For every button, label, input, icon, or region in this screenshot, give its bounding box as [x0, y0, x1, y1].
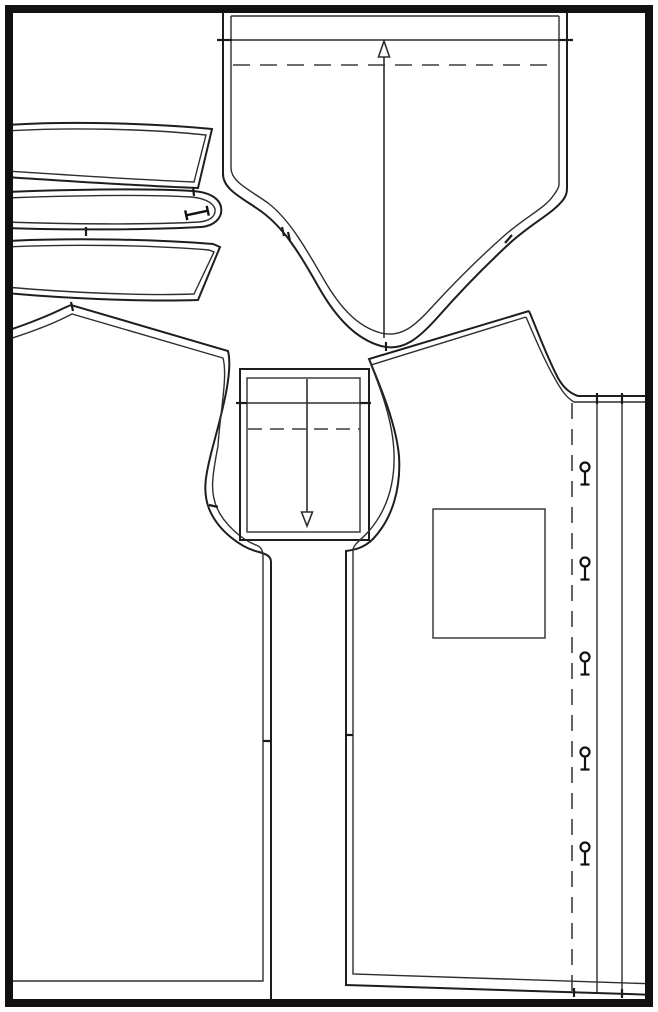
- cuff-seam-outline: [247, 378, 360, 532]
- strip-piece-3: [6, 239, 220, 300]
- grainline-layer: [302, 41, 390, 526]
- pattern-page: [0, 0, 658, 1012]
- sewing-pattern-canvas: [0, 0, 658, 1012]
- buttonhole-marker: [581, 653, 590, 675]
- right-front-neck-seam: [526, 317, 658, 402]
- back-seam-outline: [231, 16, 559, 334]
- collar-band-piece: [6, 187, 221, 236]
- back-grainline-arrow: [379, 41, 390, 338]
- collar-top-notch: [193, 187, 194, 196]
- strip-piece-1: [6, 123, 212, 188]
- collar-buttonhole-marker: [185, 206, 209, 220]
- pocket-outline: [433, 509, 545, 638]
- page-border: [9, 9, 649, 1003]
- buttonhole-marker: [581, 463, 590, 485]
- back-piece: [217, 6, 573, 351]
- buttonhole-marker: [581, 558, 590, 580]
- left-front-cut-outline: [6, 305, 271, 1008]
- right-front-body-seam: [353, 317, 658, 984]
- collar-seam-outline: [6, 195, 215, 223]
- back-curve-double-notch-a: [282, 227, 284, 236]
- buttonhole-layer: [581, 463, 590, 865]
- right-front-neck-cut: [529, 311, 658, 396]
- left-front-seam-outline: [6, 314, 263, 981]
- cuff-grainline-arrow: [302, 379, 313, 526]
- buttonhole-marker: [581, 748, 590, 770]
- right-front-body-cut: [346, 311, 658, 995]
- buttonhole-marker: [581, 843, 590, 865]
- strip3-seam-outline: [6, 245, 214, 294]
- left-front-shoulder-notch: [71, 302, 73, 311]
- left-front-piece: [6, 302, 272, 1008]
- back-cut-outline: [223, 6, 567, 347]
- collar-buttonhole-layer: [185, 206, 209, 220]
- strip1-seam-outline: [6, 129, 206, 182]
- right-front-piece: [345, 311, 658, 998]
